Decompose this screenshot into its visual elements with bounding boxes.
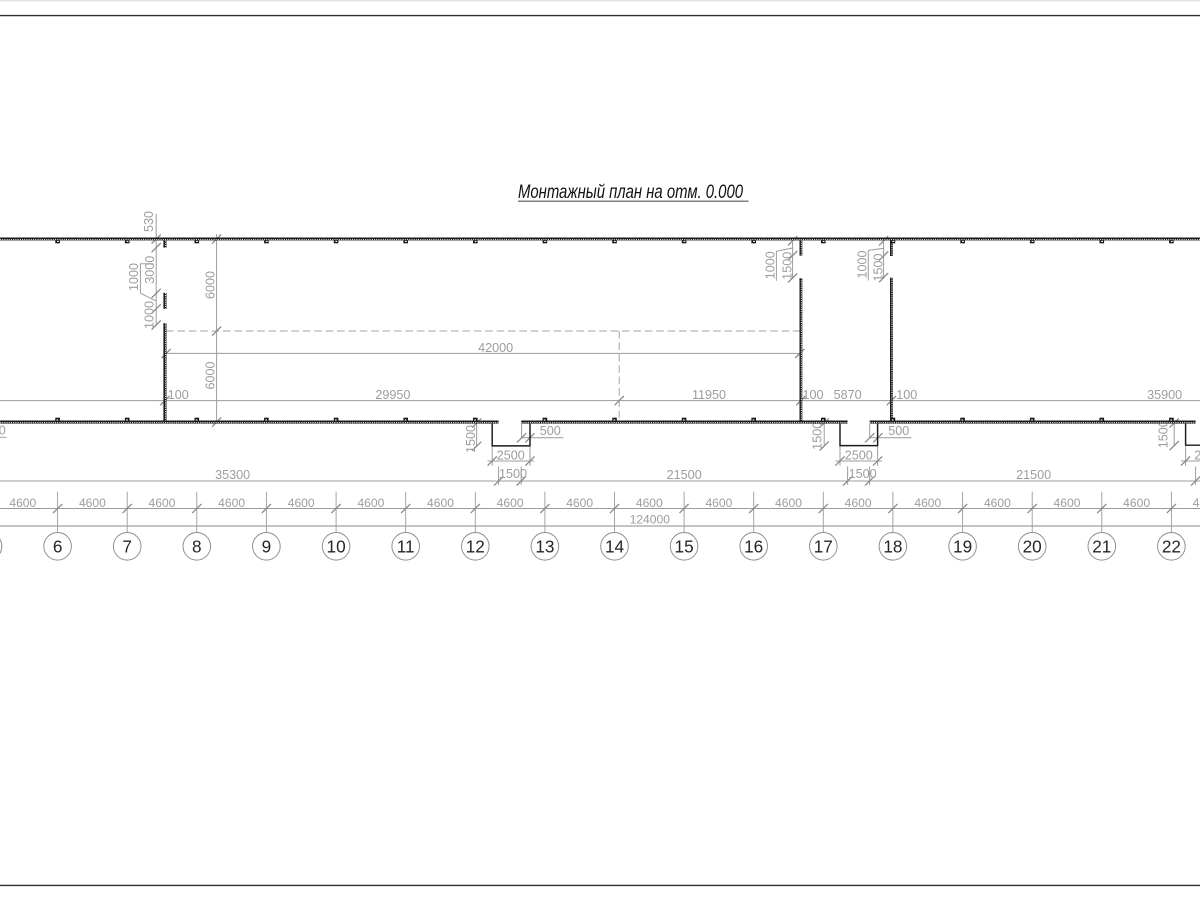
svg-text:4600: 4600 bbox=[9, 496, 36, 510]
svg-text:11950: 11950 bbox=[692, 388, 726, 402]
svg-text:1500: 1500 bbox=[1156, 420, 1170, 448]
svg-text:1500: 1500 bbox=[871, 253, 885, 281]
svg-text:16: 16 bbox=[744, 536, 763, 556]
svg-text:124000: 124000 bbox=[630, 512, 671, 526]
svg-text:4600: 4600 bbox=[705, 496, 732, 510]
svg-text:3000: 3000 bbox=[143, 256, 157, 284]
svg-text:21: 21 bbox=[1092, 536, 1111, 556]
svg-text:4600: 4600 bbox=[149, 496, 176, 510]
svg-text:1500: 1500 bbox=[811, 422, 825, 450]
svg-text:4600: 4600 bbox=[1193, 496, 1200, 510]
svg-text:4600: 4600 bbox=[914, 496, 941, 510]
svg-text:6000: 6000 bbox=[204, 361, 218, 389]
svg-text:500: 500 bbox=[540, 424, 561, 438]
svg-text:18: 18 bbox=[883, 536, 902, 556]
svg-text:4600: 4600 bbox=[636, 496, 663, 510]
svg-text:7: 7 bbox=[122, 536, 132, 556]
svg-text:21500: 21500 bbox=[1016, 468, 1051, 482]
svg-text:1500: 1500 bbox=[781, 252, 795, 280]
svg-text:530: 530 bbox=[142, 211, 156, 232]
svg-text:4600: 4600 bbox=[1054, 496, 1081, 510]
svg-text:100: 100 bbox=[168, 388, 189, 402]
svg-text:4600: 4600 bbox=[497, 496, 524, 510]
svg-text:2500: 2500 bbox=[845, 448, 873, 462]
svg-text:4600: 4600 bbox=[357, 496, 384, 510]
svg-text:1000: 1000 bbox=[764, 251, 778, 279]
svg-text:1500: 1500 bbox=[849, 467, 877, 481]
svg-text:20: 20 bbox=[1023, 536, 1042, 556]
svg-text:4600: 4600 bbox=[775, 496, 802, 510]
svg-text:4600: 4600 bbox=[218, 496, 245, 510]
svg-text:2500: 2500 bbox=[497, 448, 525, 462]
svg-text:4600: 4600 bbox=[984, 496, 1011, 510]
svg-text:6: 6 bbox=[53, 536, 63, 556]
svg-text:8: 8 bbox=[192, 536, 202, 556]
svg-text:15: 15 bbox=[675, 536, 694, 556]
svg-text:14: 14 bbox=[605, 536, 625, 556]
svg-text:10: 10 bbox=[327, 536, 346, 556]
svg-text:6000: 6000 bbox=[203, 271, 217, 299]
svg-text:4600: 4600 bbox=[427, 496, 454, 510]
svg-text:11: 11 bbox=[397, 536, 415, 556]
svg-text:42000: 42000 bbox=[478, 341, 513, 355]
svg-text:29950: 29950 bbox=[375, 388, 410, 402]
svg-text:4600: 4600 bbox=[79, 496, 106, 510]
svg-text:35900: 35900 bbox=[1147, 388, 1182, 402]
svg-text:1000: 1000 bbox=[127, 263, 141, 291]
svg-text:12: 12 bbox=[466, 536, 485, 556]
svg-text:35300: 35300 bbox=[215, 468, 250, 482]
svg-text:1000: 1000 bbox=[143, 301, 157, 329]
svg-text:4600: 4600 bbox=[845, 496, 872, 510]
svg-text:500: 500 bbox=[888, 424, 909, 438]
svg-text:17: 17 bbox=[814, 536, 833, 556]
svg-text:9: 9 bbox=[262, 536, 272, 556]
svg-text:1500: 1500 bbox=[499, 467, 527, 481]
svg-text:100: 100 bbox=[802, 388, 823, 402]
svg-text:5870: 5870 bbox=[834, 388, 862, 402]
svg-text:22: 22 bbox=[1162, 536, 1181, 556]
svg-text:4600: 4600 bbox=[566, 496, 593, 510]
svg-text:1000: 1000 bbox=[855, 250, 869, 278]
svg-text:100: 100 bbox=[896, 388, 917, 402]
svg-text:21500: 21500 bbox=[667, 468, 702, 482]
svg-text:1500: 1500 bbox=[464, 425, 478, 453]
svg-text:4600: 4600 bbox=[288, 496, 315, 510]
svg-text:Монтажный план на отм. 0.000: Монтажный план на отм. 0.000 bbox=[518, 182, 743, 203]
svg-text:4600: 4600 bbox=[1123, 496, 1150, 510]
svg-text:19: 19 bbox=[953, 536, 972, 556]
svg-text:13: 13 bbox=[535, 536, 554, 556]
svg-text:0: 0 bbox=[0, 424, 6, 438]
svg-text:2500: 2500 bbox=[1194, 448, 1200, 462]
